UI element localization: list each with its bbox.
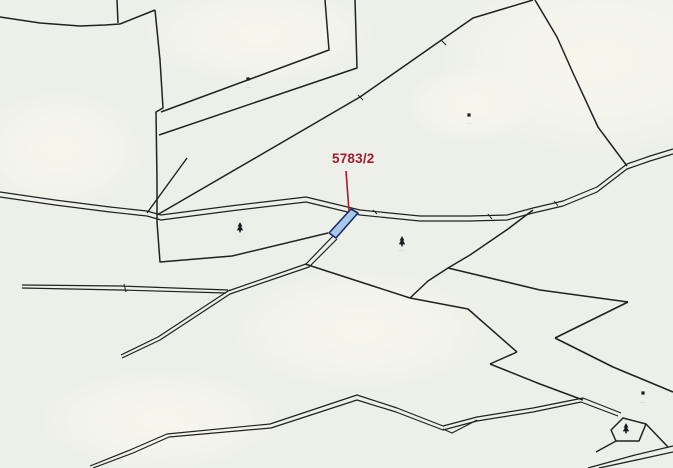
micro-parcel-number: ····: [237, 234, 243, 239]
terrain-patch: [405, 67, 535, 143]
highlighted-parcel-label: 5783/2: [332, 151, 375, 166]
cadastral-map-layer: ····················: [0, 0, 673, 468]
point-symbol-icon: [641, 391, 644, 394]
terrain-patch: [230, 270, 490, 390]
map-canvas[interactable]: ···················· 5783/2: [0, 0, 673, 468]
point-symbol-icon: [246, 77, 249, 80]
micro-parcel-number: ····: [399, 248, 405, 253]
terrain-patch: [40, 370, 280, 468]
micro-parcel-number: ····: [640, 400, 646, 405]
boundary-top-vertical: [117, 0, 118, 23]
micro-parcel-number: ····: [245, 85, 251, 90]
point-symbol-icon: [467, 113, 470, 116]
micro-parcel-number: ····: [466, 121, 472, 126]
